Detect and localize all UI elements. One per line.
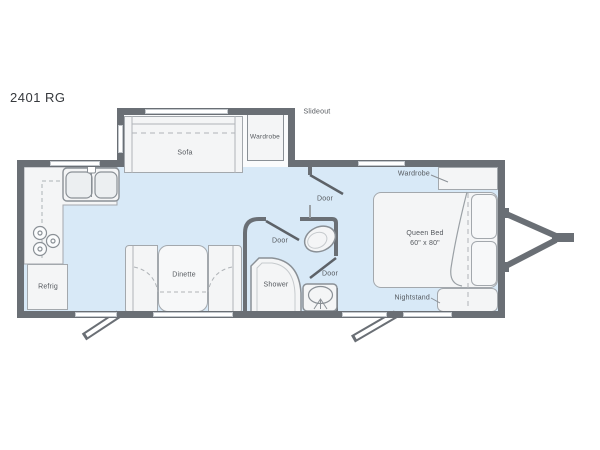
queen-bed-label: Queen Bed 60" x 80" [406,229,443,249]
sink-basin-left [66,172,92,198]
bath-bedroom-door-label: Door [322,271,338,278]
plan-title: 2401 RG [10,90,66,105]
pillow-top [471,194,497,239]
window-kitchen [50,161,100,166]
dinette-label: Dinette [172,272,196,279]
dinette-bench-right [208,245,242,312]
sink-basin-right [95,172,117,198]
hitch-mount-bottom [501,262,509,272]
slideout-label: Slideout [304,109,331,116]
hitch [504,213,574,267]
sofa-label: Sofa [177,150,192,157]
bedroom-door-label: Door [317,196,333,203]
entry-opening-main [75,312,117,317]
dinette-bench-left [125,245,158,312]
pillow-bottom [471,241,497,286]
wall-left [17,160,24,318]
slideout-wardrobe-label: Wardrobe [250,134,280,141]
bedroom-divider-stub [308,162,312,175]
nightstand-label: Nightstand [395,295,430,302]
bedroom-wardrobe [438,167,498,190]
queen-bed-label-line2: 60" x 80" [410,240,440,247]
queen-bed-label-line1: Queen Bed [406,230,443,237]
window-bedroom-top [358,161,405,166]
floorplan: 2401 RG Slideout Sofa Wardrobe Wardrobe … [0,0,600,450]
nightstand [437,288,498,312]
bedroom-wardrobe-label: Wardrobe [398,171,430,178]
hitch-mount-top [501,208,509,218]
bathroom-door-label: Door [272,238,288,245]
shower-label: Shower [264,282,289,289]
sofa [124,116,243,173]
entry-opening-bedroom [342,312,387,317]
window-slideout-top [145,109,228,114]
window-bedroom-bottom [403,312,452,317]
wall-slideout-right [288,108,295,167]
refrig-label: Refrig [38,284,58,291]
stove-cooktop [28,222,62,260]
window-slideout-side [118,125,123,153]
window-dinette [153,312,233,317]
wall-right [498,160,505,318]
dinette-table [158,245,208,312]
